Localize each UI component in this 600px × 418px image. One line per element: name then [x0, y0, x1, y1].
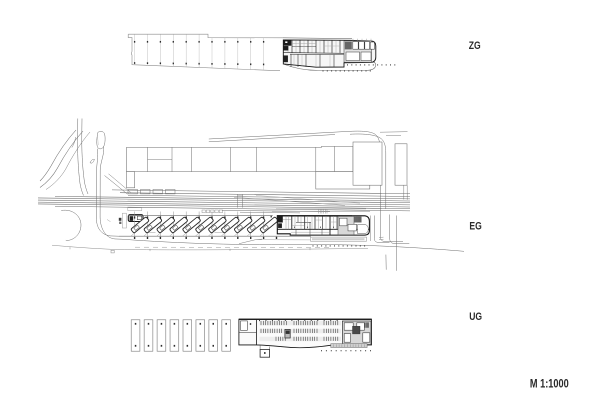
svg-text:M 1:1000: M 1:1000 — [530, 379, 569, 391]
svg-text:EG: EG — [469, 220, 482, 232]
svg-text:UG: UG — [469, 311, 482, 323]
svg-text:ZG: ZG — [469, 40, 481, 52]
